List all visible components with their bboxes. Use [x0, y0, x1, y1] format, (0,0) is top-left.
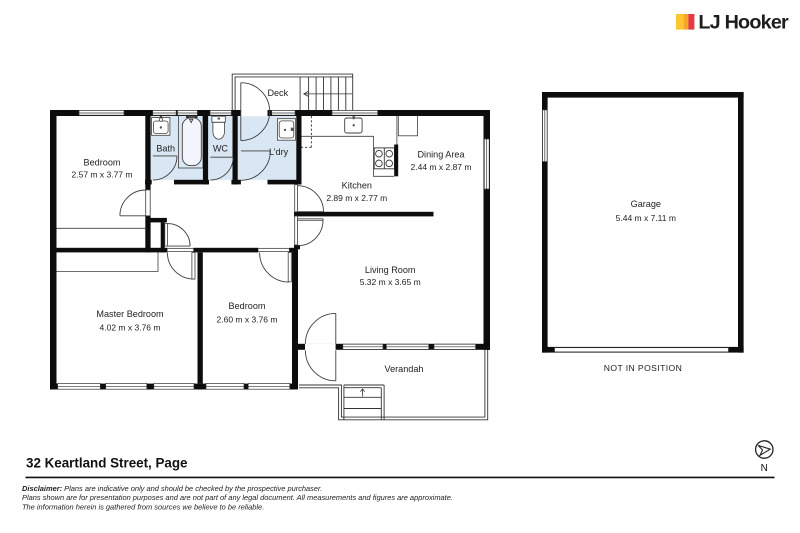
svg-text:Kitchen: Kitchen [342, 180, 372, 190]
svg-text:N: N [761, 463, 768, 474]
svg-text:Deck: Deck [267, 88, 288, 98]
svg-text:LJ Hooker: LJ Hooker [698, 12, 789, 34]
svg-text:Bedroom: Bedroom [84, 157, 121, 167]
svg-text:Verandah: Verandah [385, 364, 424, 374]
svg-text:2.60 m x 3.76 m: 2.60 m x 3.76 m [217, 315, 278, 325]
svg-text:4.02 m x 3.76 m: 4.02 m x 3.76 m [100, 322, 161, 332]
svg-text:Dining Area: Dining Area [417, 150, 465, 160]
svg-text:2.57 m x 3.77 m: 2.57 m x 3.77 m [72, 170, 133, 180]
svg-text:5.32 m x 3.65 m: 5.32 m x 3.65 m [360, 277, 421, 287]
svg-text:Plans shown are for presentati: Plans shown are for presentation purpose… [22, 493, 453, 502]
svg-text:Master Bedroom: Master Bedroom [96, 309, 163, 319]
svg-text:Disclaimer: Plans are indicati: Disclaimer: Plans are indicative only an… [22, 484, 322, 493]
svg-text:Living Room: Living Room [365, 265, 416, 275]
svg-text:32 Keartland Street, Page: 32 Keartland Street, Page [26, 456, 188, 471]
svg-text:Garage: Garage [631, 199, 661, 209]
svg-text:L’dry: L’dry [269, 147, 289, 157]
svg-text:NOT IN POSITION: NOT IN POSITION [604, 363, 682, 373]
svg-text:Bedroom: Bedroom [229, 301, 266, 311]
svg-text:2.89 m x 2.77 m: 2.89 m x 2.77 m [326, 193, 387, 203]
svg-text:WC: WC [213, 144, 229, 154]
svg-text:Bath: Bath [156, 144, 175, 154]
svg-text:2.44 m x 2.87 m: 2.44 m x 2.87 m [411, 162, 472, 172]
svg-text:5.44 m x 7.11 m: 5.44 m x 7.11 m [616, 213, 676, 223]
svg-text:The information herein is gath: The information herein is gathered from … [22, 503, 264, 512]
